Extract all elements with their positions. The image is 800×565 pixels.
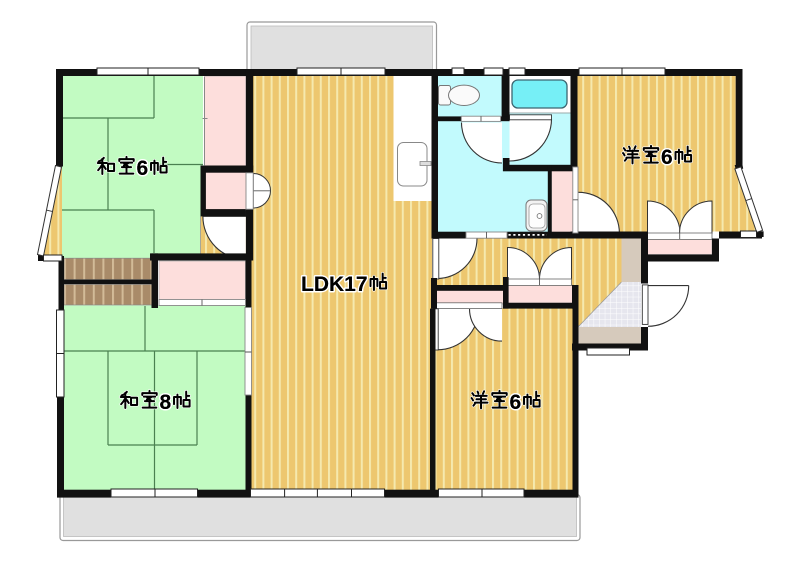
svg-text:6: 6	[137, 157, 149, 180]
svg-text:LDK17: LDK17	[301, 273, 368, 296]
svg-text:6: 6	[661, 146, 673, 169]
svg-text:6: 6	[510, 391, 522, 414]
svg-text:8: 8	[160, 391, 172, 414]
